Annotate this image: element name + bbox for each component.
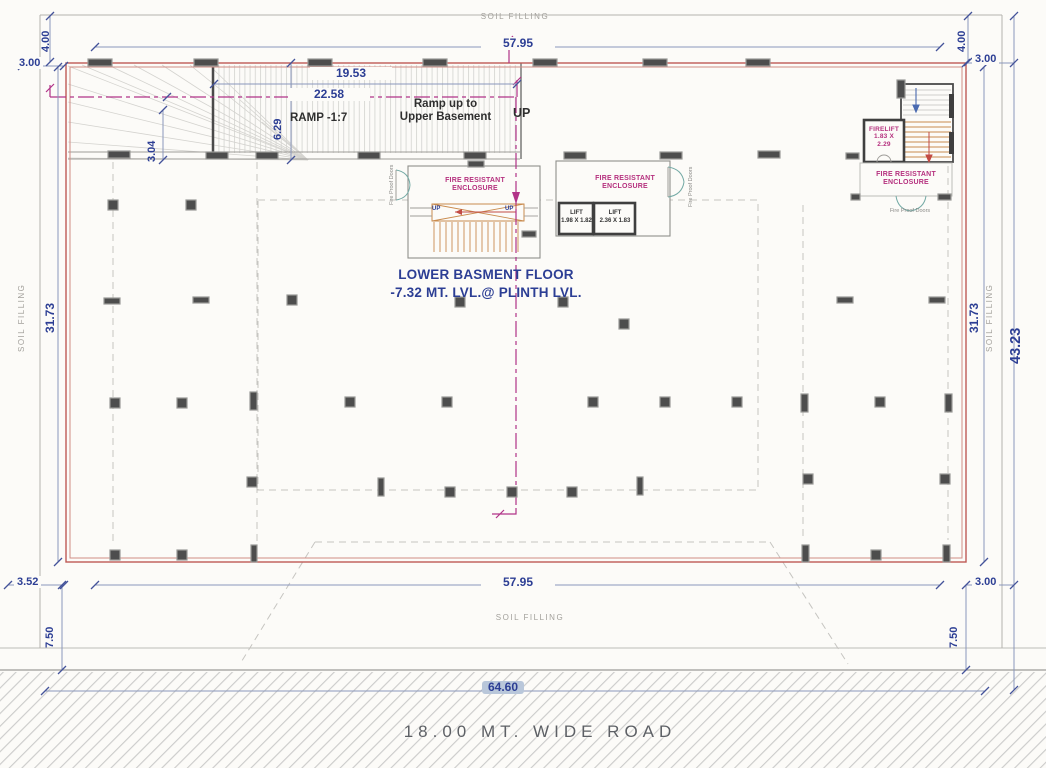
lift2-name: LIFT xyxy=(595,210,635,218)
ramp-slope-label: RAMP -1:7 xyxy=(290,112,347,125)
ramp-up-label: UP xyxy=(513,106,530,120)
floor-title: LOWER BASMENT FLOOR -7.32 MT. LVL.@ PLIN… xyxy=(360,266,612,301)
dim-bottom-width: 57.95 xyxy=(481,576,555,589)
dim-ramp-upper: 19.53 xyxy=(310,67,392,80)
dim-overall-depth: 43.23 xyxy=(1008,328,1024,364)
fire-line2: ENCLOSURE xyxy=(430,185,520,193)
lift1-name: LIFT xyxy=(560,210,593,218)
fire-line2: ENCLOSURE xyxy=(580,183,670,191)
ramp-note: Ramp up to Upper Basement xyxy=(388,98,503,124)
soil-filling-right: SOIL FILLING xyxy=(986,284,995,352)
right-fire-door-label: Fire Proof Doors xyxy=(878,208,942,214)
firelift-line1: FIRELIFT xyxy=(864,126,904,133)
ramp-note-line2: Upper Basement xyxy=(388,111,503,124)
dim-soil-bottom-left: 7.50 xyxy=(44,627,56,648)
dim-right-depth: 31.73 xyxy=(968,300,981,336)
lift1-label: LIFT 1.98 X 1.82 xyxy=(560,210,593,226)
dim-bottom-left-offset: 3.52 xyxy=(14,576,41,588)
dim-overall-width: 64.60 xyxy=(482,681,524,694)
fire-line1: FIRE RESISTANT xyxy=(580,175,670,183)
soil-filling-bottom: SOIL FILLING xyxy=(470,614,590,623)
road-area xyxy=(0,648,1046,768)
road-label: 18.00 MT. WIDE ROAD xyxy=(320,722,760,741)
floor-plan-sheet: SOIL FILLING 57.95 4.00 4.00 3.00 3.00 1… xyxy=(0,0,1046,768)
lift-fire-enclosure-label: FIRE RESISTANT ENCLOSURE xyxy=(580,175,670,191)
stair-up-left: UP xyxy=(432,206,440,213)
dim-ramp-width: 6.29 xyxy=(272,119,284,140)
firelift-label: FIRELIFT 1.83 X 2.29 xyxy=(864,126,904,148)
fire-line1: FIRE RESISTANT xyxy=(862,171,950,179)
dim-left-depth: 31.73 xyxy=(44,300,57,336)
dim-soil-top-right: 4.00 xyxy=(956,31,968,52)
dim-ramp-center: 22.58 xyxy=(288,88,370,101)
dim-top-right-offset: 3.00 xyxy=(972,53,999,65)
floor-title-line2: -7.32 MT. LVL.@ PLINTH LVL. xyxy=(360,284,612,302)
floor-title-line1: LOWER BASMENT FLOOR xyxy=(360,266,612,284)
fire-line2: ENCLOSURE xyxy=(862,179,950,187)
stair-up-right: UP xyxy=(505,206,513,213)
lift2-size: 2.36 X 1.83 xyxy=(595,218,635,226)
soil-filling-top: SOIL FILLING xyxy=(455,13,575,22)
lift1-size: 1.98 X 1.82 xyxy=(560,218,593,226)
ramp-note-line1: Ramp up to xyxy=(388,98,503,111)
dim-ramp-side: 3.04 xyxy=(146,141,158,162)
stair-fire-door-label: Fire Proof Doors xyxy=(389,165,395,205)
dim-top-width: 57.95 xyxy=(481,37,555,50)
right-fire-enclosure-label: FIRE RESISTANT ENCLOSURE xyxy=(862,171,950,187)
dim-bottom-right-offset: 3.00 xyxy=(972,576,999,588)
firelift-line3: 2.29 xyxy=(864,141,904,148)
lift2-label: LIFT 2.36 X 1.83 xyxy=(595,210,635,226)
lift-fire-door-label: Fire Proof Doors xyxy=(688,167,694,207)
dim-soil-top-left: 4.00 xyxy=(40,31,52,52)
firelift-line2: 1.83 X xyxy=(864,133,904,140)
dim-top-left-offset: 3.00 xyxy=(16,57,43,69)
dim-soil-bottom-right: 7.50 xyxy=(948,627,960,648)
fire-line1: FIRE RESISTANT xyxy=(430,177,520,185)
stair-fire-enclosure-label: FIRE RESISTANT ENCLOSURE xyxy=(430,177,520,193)
soil-filling-left: SOIL FILLING xyxy=(18,284,27,352)
